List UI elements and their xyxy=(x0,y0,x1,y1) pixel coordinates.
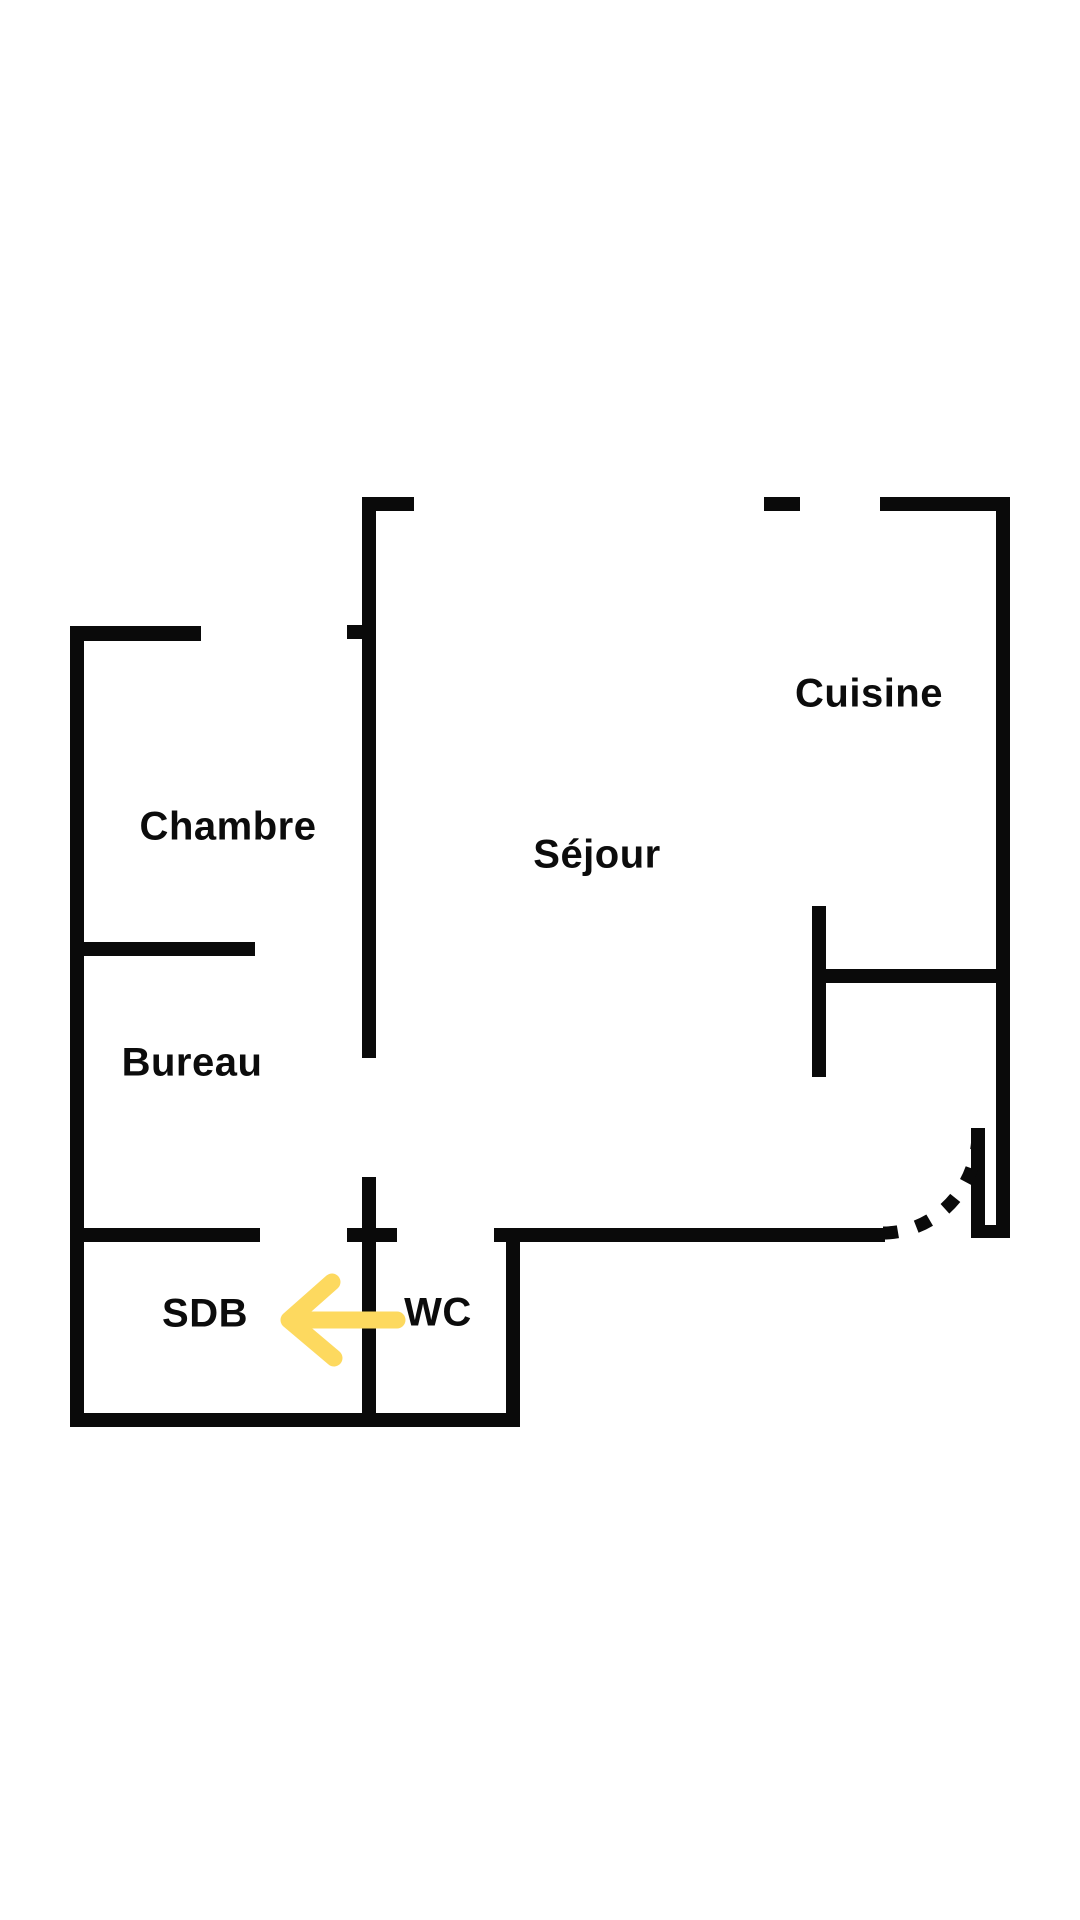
room-label-wc: WC xyxy=(404,1291,472,1336)
room-label-bureau: Bureau xyxy=(122,1041,263,1086)
room-label-cuisine: Cuisine xyxy=(795,672,943,717)
wall-cuisine-horizontal xyxy=(812,969,1010,983)
wall-middle-left-tick xyxy=(347,625,362,639)
wall-sdb-top xyxy=(70,1228,260,1242)
room-label-sejour: Séjour xyxy=(533,833,660,878)
arrow-left-icon xyxy=(289,1282,397,1358)
wall-sdb-wc-divider xyxy=(362,1177,376,1427)
wall-sejour-bottom xyxy=(494,1228,885,1242)
wall-top-long xyxy=(880,497,1010,511)
wall-right-exterior xyxy=(996,497,1010,1238)
wall-middle-vertical xyxy=(362,497,376,1058)
wall-chambre-top xyxy=(70,626,201,641)
wall-bottom-exterior xyxy=(70,1413,520,1427)
room-label-chambre: Chambre xyxy=(140,805,317,850)
floor-plan-canvas: Cuisine Chambre Séjour Bureau SDB WC xyxy=(0,0,1080,1920)
wall-jamb-connector xyxy=(971,1225,1010,1238)
door-swing-arc-icon xyxy=(883,1133,978,1233)
wall-wc-right xyxy=(506,1228,520,1427)
walls xyxy=(70,497,1010,1427)
room-label-sdb: SDB xyxy=(162,1292,248,1337)
wall-left-exterior xyxy=(70,626,84,1427)
wall-divider-tick xyxy=(347,1228,397,1242)
wall-chambre-bureau-divider xyxy=(70,942,255,956)
floor-plan-drawing xyxy=(0,0,1080,1920)
wall-top-short xyxy=(764,497,800,511)
wall-cuisine-stub-vertical xyxy=(812,906,826,1077)
